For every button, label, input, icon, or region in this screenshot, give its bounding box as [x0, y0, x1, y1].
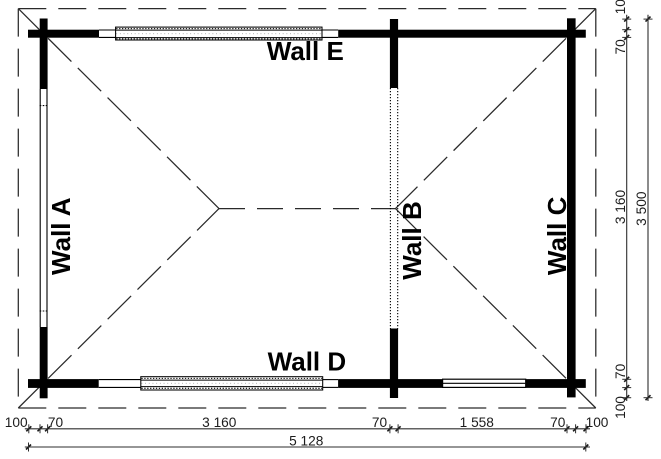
- svg-text:70: 70: [550, 415, 566, 430]
- svg-text:Wall A: Wall A: [46, 197, 76, 275]
- svg-text:100: 100: [5, 415, 28, 430]
- svg-text:Wall E: Wall E: [267, 36, 344, 66]
- svg-text:70: 70: [613, 363, 628, 379]
- svg-text:3 500: 3 500: [634, 191, 649, 226]
- svg-text:3 160: 3 160: [202, 415, 237, 430]
- svg-text:Wall C: Wall C: [542, 196, 572, 275]
- svg-text:70: 70: [48, 415, 64, 430]
- svg-text:100: 100: [586, 415, 609, 430]
- svg-text:70: 70: [372, 415, 388, 430]
- svg-text:100: 100: [613, 0, 628, 14]
- svg-text:Wall D: Wall D: [268, 347, 346, 377]
- svg-text:1 558: 1 558: [460, 415, 495, 430]
- svg-text:100: 100: [613, 396, 628, 419]
- svg-text:70: 70: [613, 39, 628, 55]
- svg-text:3 160: 3 160: [613, 189, 628, 224]
- svg-text:5 128: 5 128: [289, 433, 324, 448]
- svg-text:Wall B: Wall B: [397, 201, 427, 279]
